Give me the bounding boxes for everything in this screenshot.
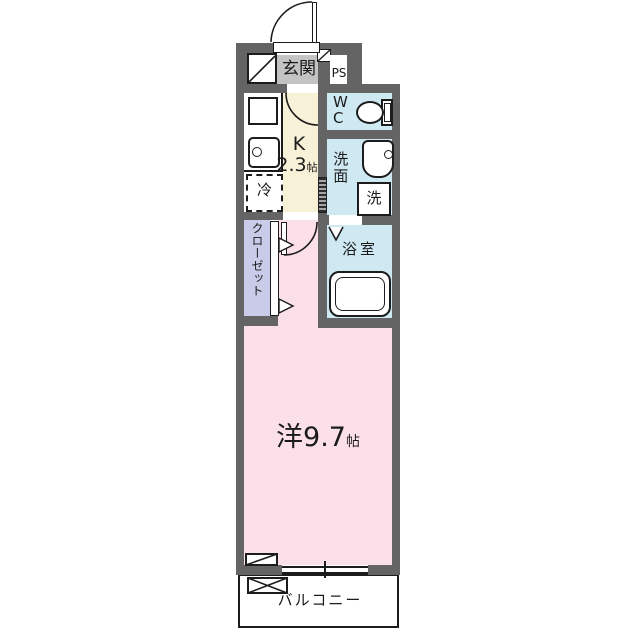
wc-label: W C: [333, 94, 348, 126]
wall-wc-senmen: [327, 130, 392, 139]
main-room-label: 洋9.7帖: [244, 423, 392, 452]
toilet-icon: [356, 101, 384, 124]
bath-label: 浴室: [331, 241, 389, 257]
kitchen-size-unit: 帖: [307, 161, 318, 174]
balcony-label: バルコニー: [250, 592, 390, 608]
fridge-label: 冷: [246, 182, 283, 198]
doorway-kitchen-to-room: [283, 212, 318, 220]
kitchen-size-label: 2.3帖: [270, 155, 324, 176]
wall-main-left: [236, 93, 244, 575]
washbasin-faucet-dot: [384, 150, 393, 159]
ps-label: PS: [329, 67, 349, 80]
closet-door-panel: [270, 221, 279, 316]
laundry-label: 洗: [357, 190, 391, 206]
closet-label: クローゼット: [250, 222, 263, 316]
wall-bottom-left: [236, 565, 282, 575]
main-room-name: 洋9.7: [276, 422, 346, 453]
wall-bottom-right: [368, 565, 400, 575]
bath-threshold: [329, 215, 362, 225]
main-room-unit: 帖: [346, 434, 360, 450]
wall-main-top: [236, 84, 400, 93]
room-door-leaf: [281, 222, 287, 255]
wall-bath-bottom: [318, 318, 400, 328]
genkan-label: 玄関: [272, 60, 326, 78]
doorway-entrance-to-kitchen: [287, 84, 318, 93]
entrance-door-leaf: [312, 2, 317, 43]
washbasin-icon: [362, 140, 394, 178]
window-center-tick: [324, 561, 326, 578]
kitchen-size-value: 2.3: [276, 154, 306, 176]
toilet-tank-inner: [384, 103, 391, 122]
bathtub-inner: [335, 277, 385, 311]
main-room-floor: [278, 220, 318, 565]
entrance-door-sill: [273, 42, 320, 53]
entrance-door-swing-arc-icon: [271, 2, 312, 42]
stove-counter-icon: [248, 97, 278, 125]
kitchen-faucet-dot: [252, 147, 262, 157]
diagonal-box-icon: [245, 553, 278, 566]
wall-closet-bottom: [236, 316, 278, 326]
senmen-label: 洗面: [332, 151, 348, 213]
kitchen-label: K: [283, 134, 315, 155]
sliding-door-icon: [318, 177, 327, 213]
floor-plan: 玄関 PS W C K 2.3帖 冷 洗面 洗 浴室 クローゼット 洋9.7帖 …: [0, 0, 640, 640]
